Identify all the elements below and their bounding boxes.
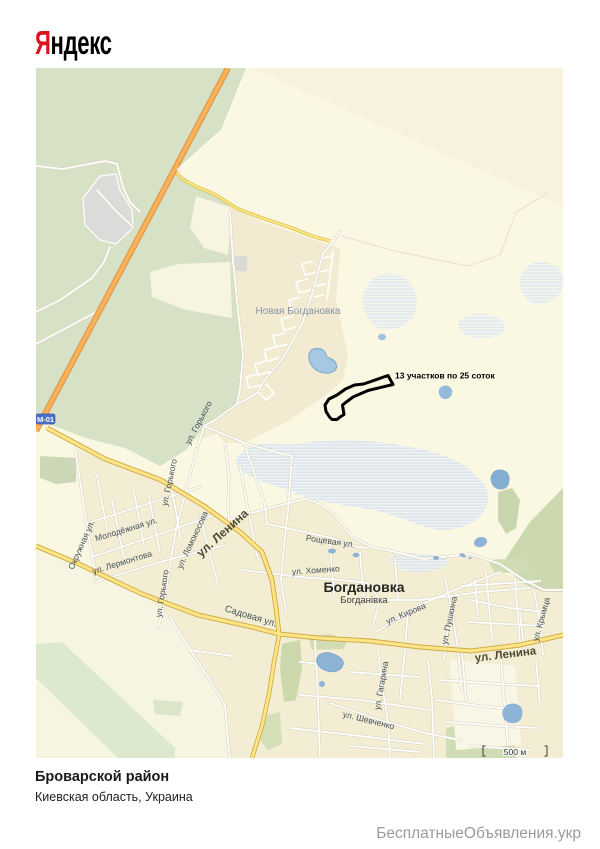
svg-text:М-01: М-01 xyxy=(37,415,54,424)
svg-text:13 участков по 25 соток: 13 участков по 25 соток xyxy=(395,371,495,381)
svg-text:500 м: 500 м xyxy=(504,747,527,757)
svg-text:Новая Богдановка: Новая Богдановка xyxy=(255,306,340,317)
svg-text:Богданівка: Богданівка xyxy=(340,595,388,606)
svg-text:Богдановка: Богдановка xyxy=(324,579,405,595)
